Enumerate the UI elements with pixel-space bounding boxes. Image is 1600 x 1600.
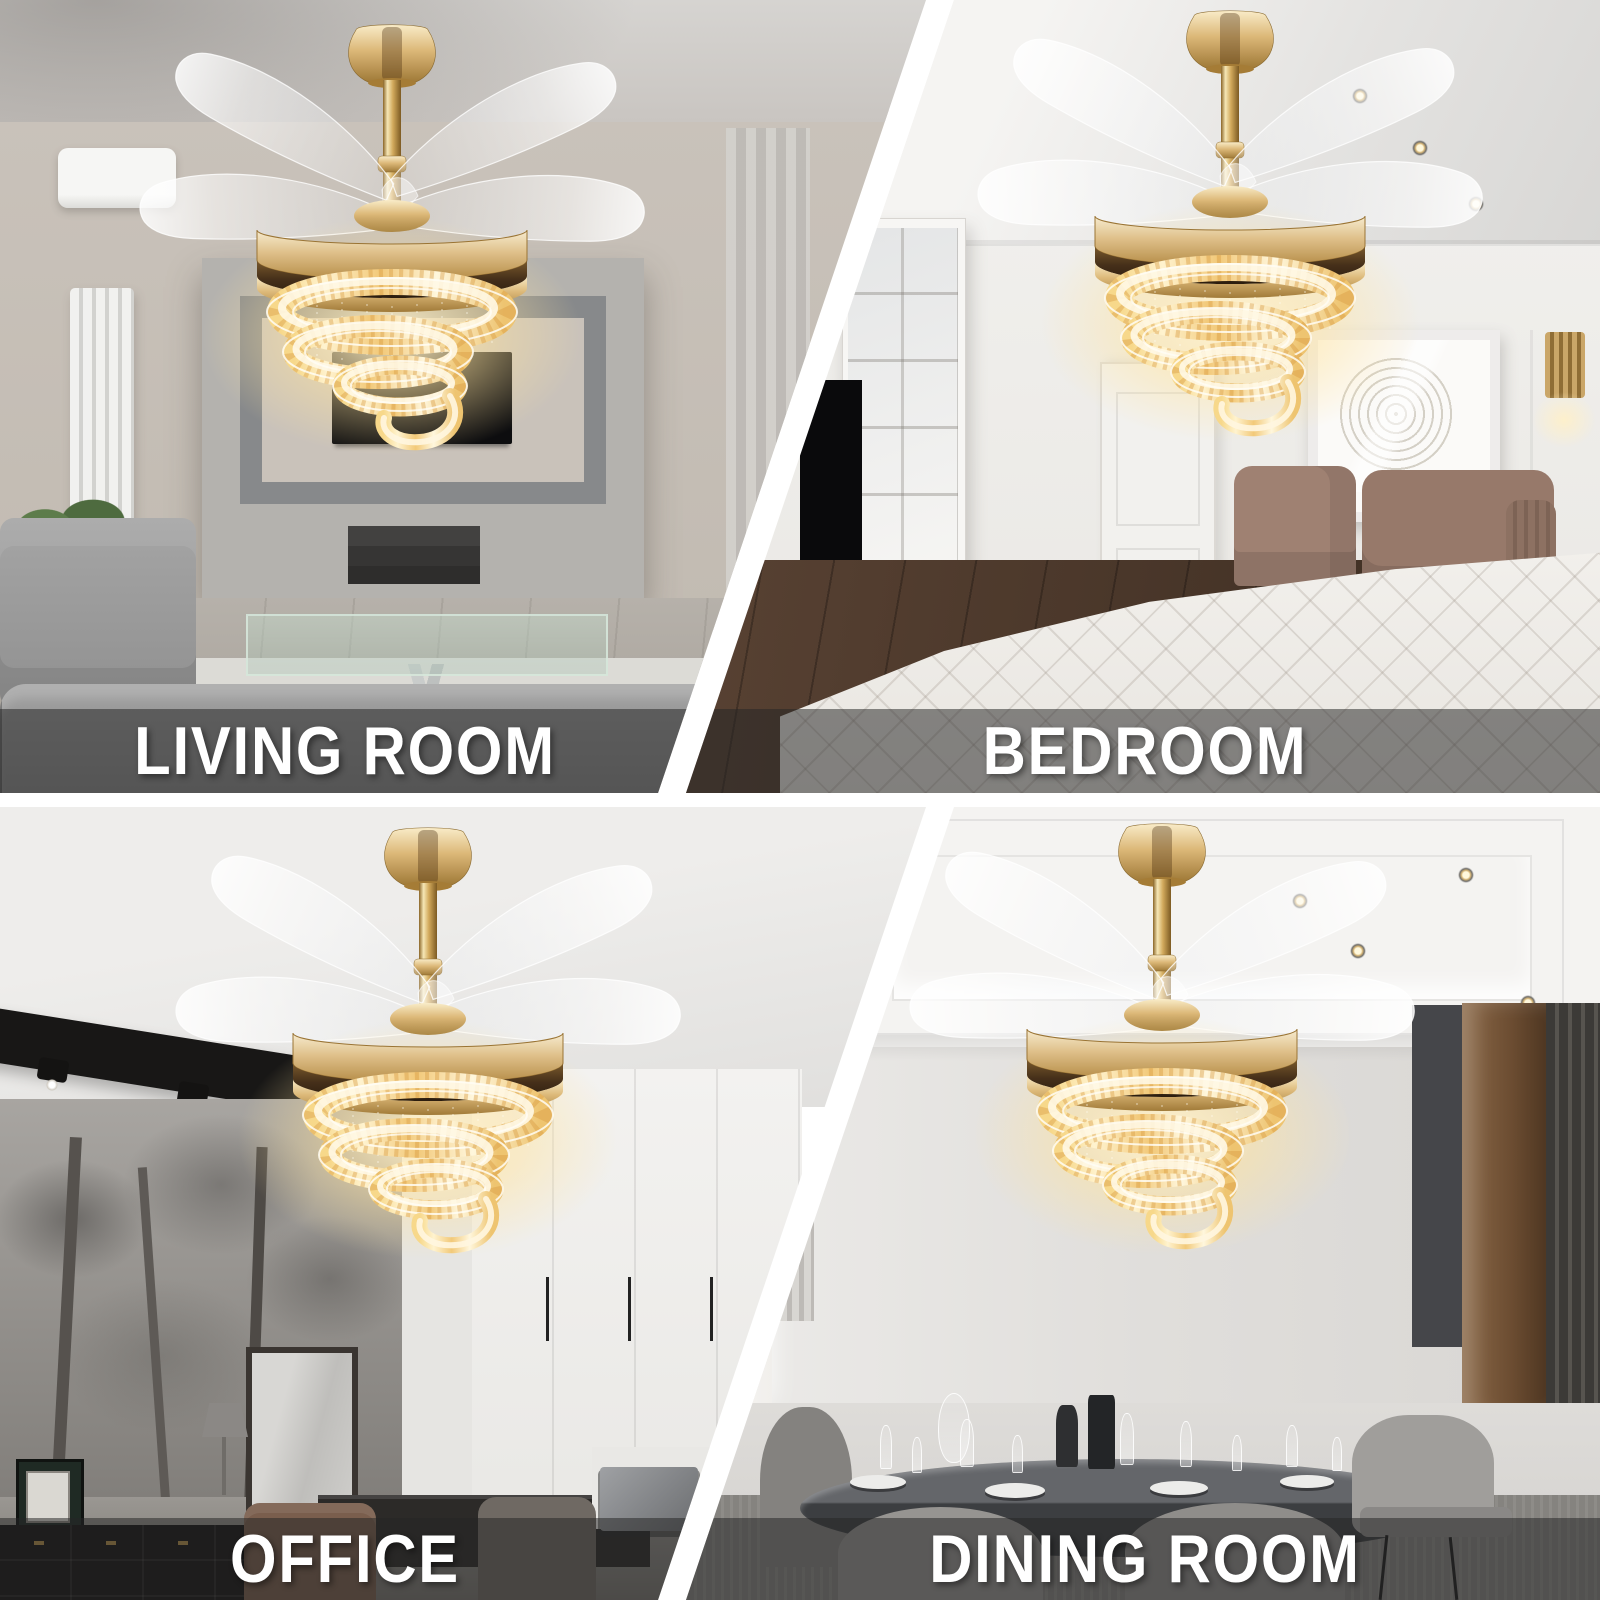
wall-sconce [1545, 332, 1585, 398]
wardrobe-handle [546, 1277, 549, 1341]
ceiling-fan-chandelier-graphic [902, 819, 1422, 1259]
dinner-plate [985, 1483, 1045, 1498]
label-office: OFFICE [41, 1525, 648, 1593]
vase [1088, 1395, 1115, 1469]
lamp-stem [222, 1437, 226, 1495]
label-bedroom: BEDROOM [745, 717, 1546, 785]
sconce-glow [1532, 392, 1596, 448]
sectional-sofa-chaise [0, 518, 196, 708]
label-living-room: LIVING ROOM [41, 717, 648, 785]
wine-glass [1012, 1435, 1023, 1473]
spotlight-lens [46, 1079, 58, 1091]
ceiling-fan-chandelier-graphic [970, 6, 1490, 446]
slat-wall [1546, 1003, 1600, 1423]
decanter [938, 1393, 970, 1463]
clock-face [26, 1471, 70, 1523]
wine-glass [912, 1437, 922, 1473]
dinner-plate [1150, 1481, 1208, 1495]
top-row: LIVING ROOM [0, 0, 1600, 793]
wine-glass [880, 1425, 892, 1469]
recessed-downlight [1458, 867, 1474, 883]
wine-glass [1120, 1413, 1134, 1465]
bookcase-glass-panes [848, 228, 958, 564]
table-lamp [202, 1403, 248, 1437]
wine-glass [1232, 1435, 1242, 1471]
label-dining-room: DINING ROOM [745, 1525, 1546, 1593]
dinner-plate [1280, 1475, 1334, 1488]
dinner-plate [850, 1475, 906, 1489]
bottom-row: OFFICE [0, 807, 1600, 1600]
ceiling-fan-chandelier-graphic [168, 823, 688, 1263]
media-shelf [348, 526, 480, 584]
wardrobe-handle [628, 1277, 631, 1341]
wine-glass [1332, 1437, 1342, 1471]
ceiling-fan-chandelier-graphic [132, 20, 652, 460]
product-collage: LIVING ROOM [0, 0, 1600, 1600]
armchair [1234, 466, 1356, 586]
bottle [1056, 1405, 1078, 1467]
wine-glass [1286, 1425, 1298, 1467]
wine-glass [1180, 1421, 1192, 1467]
glass-coffee-table [246, 614, 608, 676]
wardrobe-handle [710, 1277, 713, 1341]
wood-door [1462, 1003, 1546, 1415]
